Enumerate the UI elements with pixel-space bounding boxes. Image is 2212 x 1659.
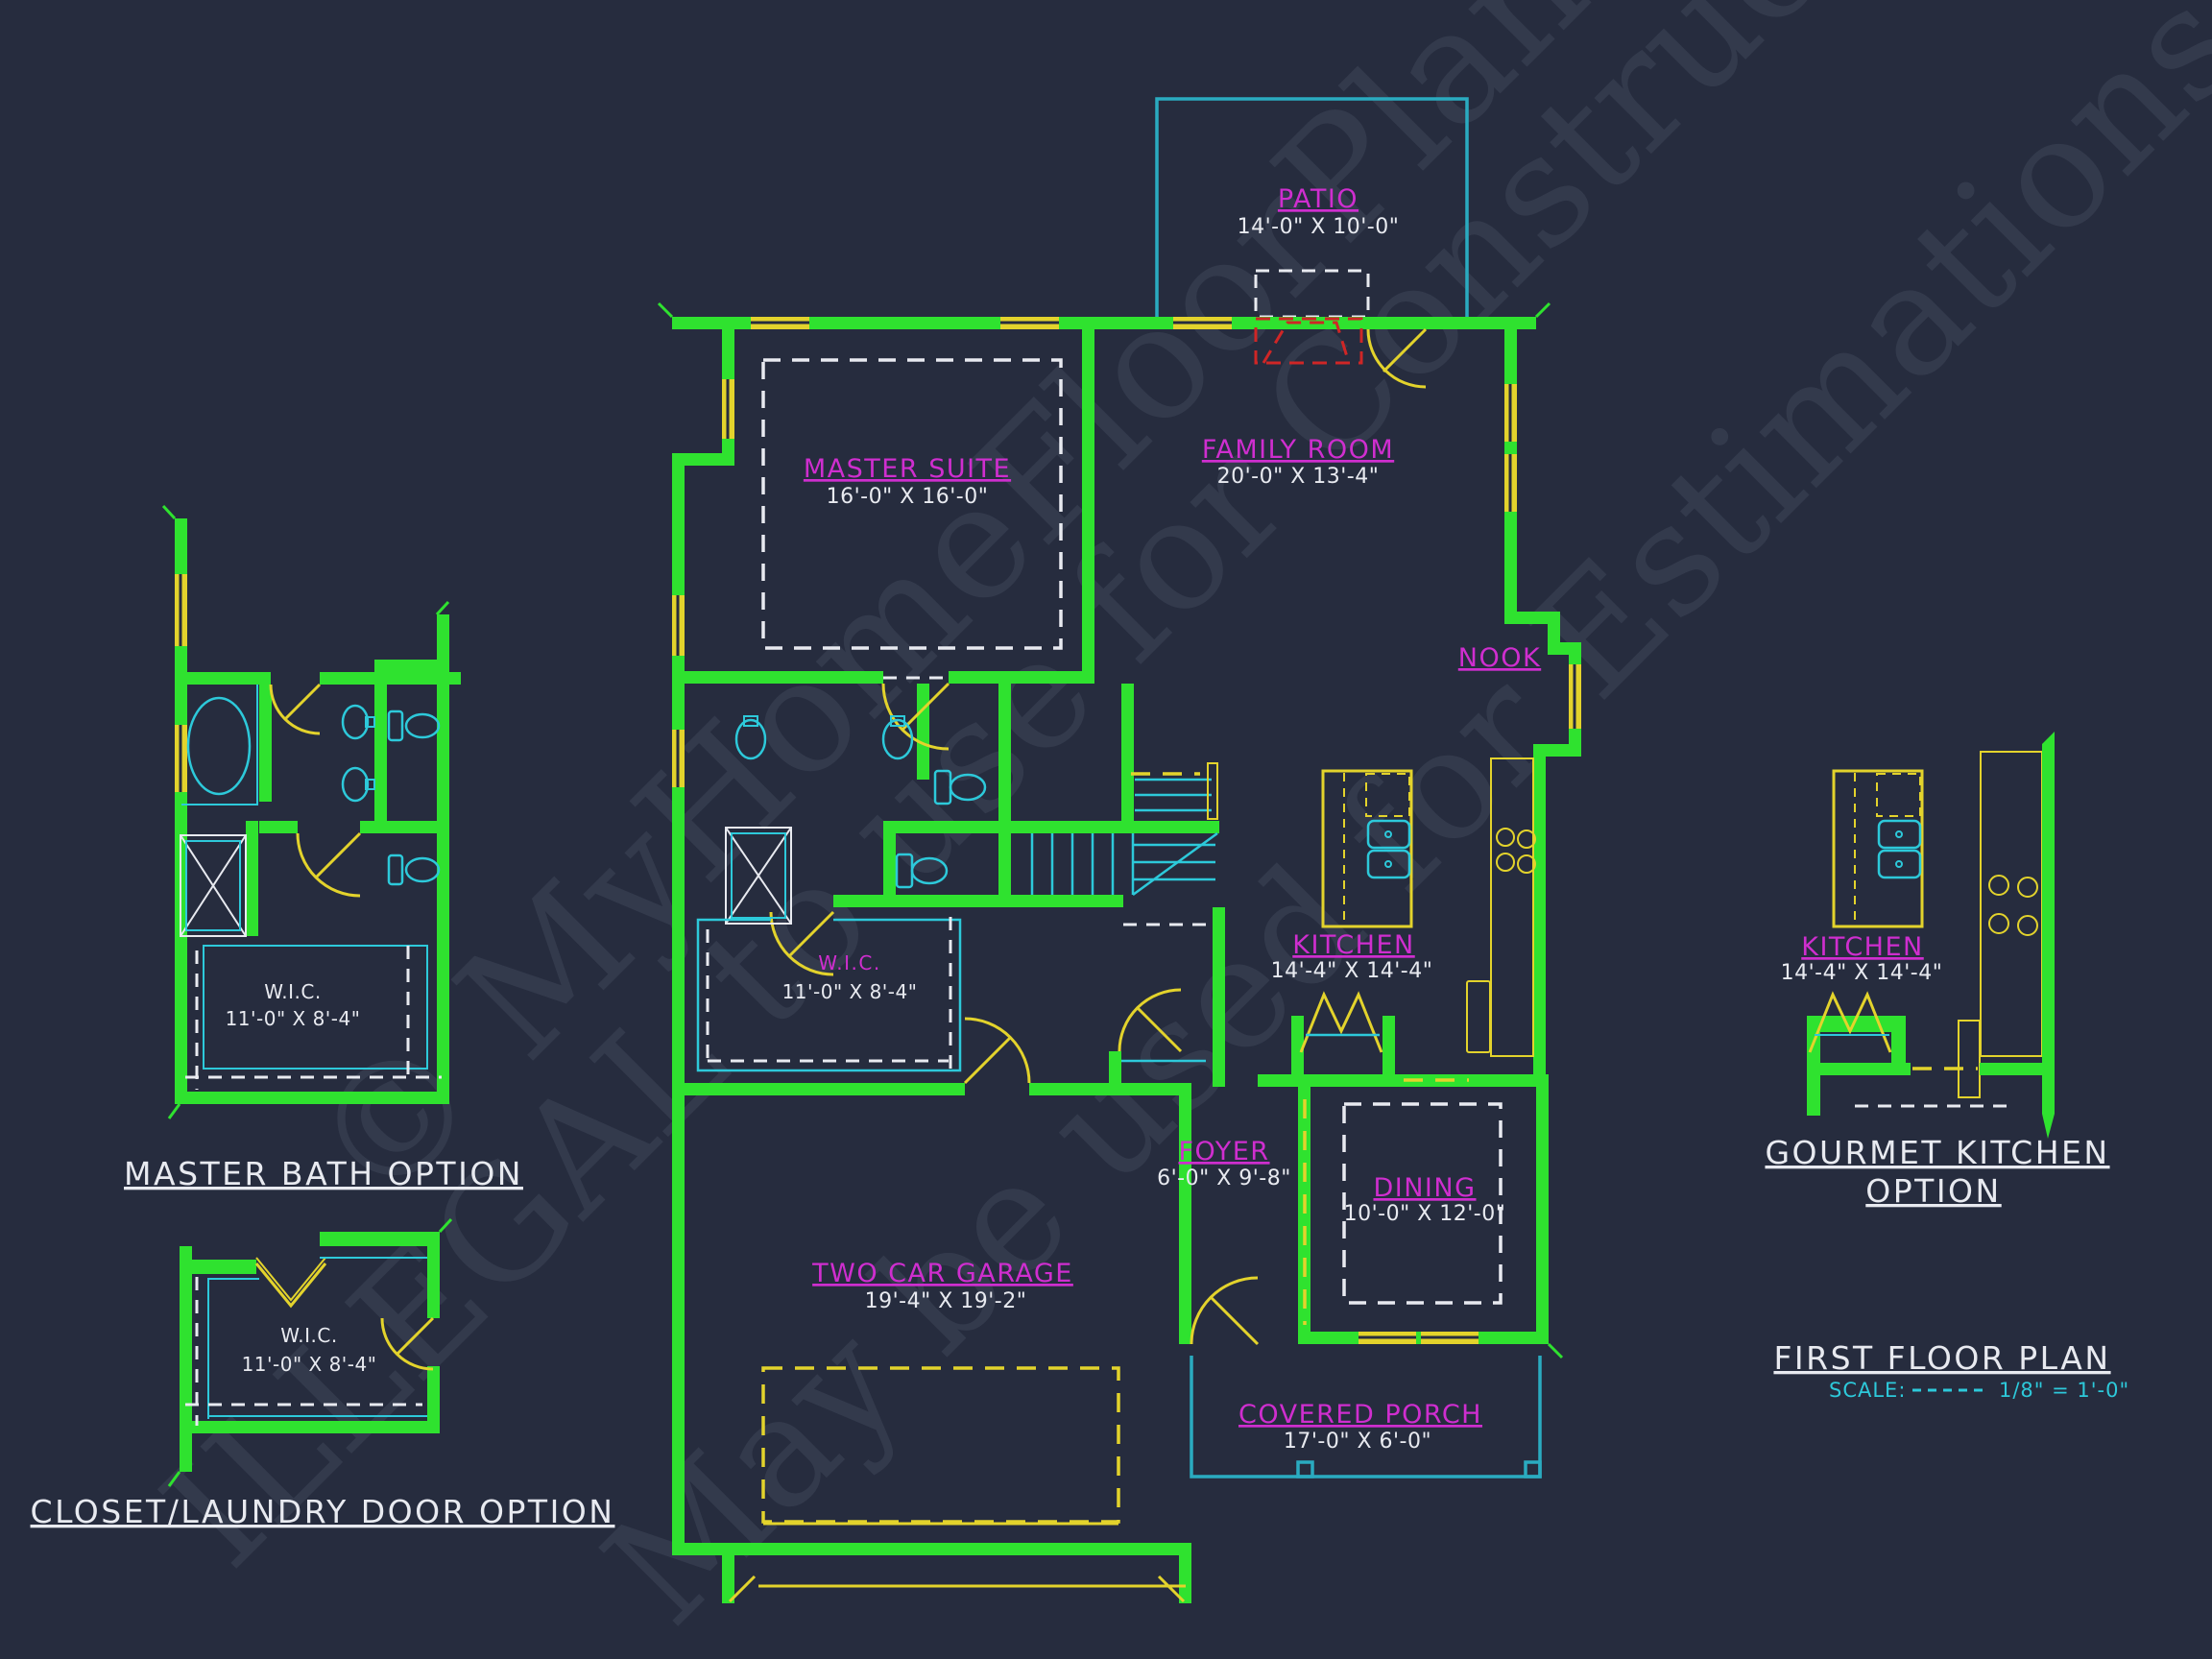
- room-label-garage: TWO CAR GARAGE: [811, 1259, 1073, 1288]
- room-dim-master-suite: 16'-0" X 16'-0": [827, 485, 989, 509]
- room-dim-family-room: 20'-0" X 13'-4": [1217, 465, 1380, 489]
- covered-porch: COVERED PORCH 17'-0" X 6'-0": [1191, 1356, 1540, 1477]
- plan-title: FIRST FLOOR PLAN: [1773, 1339, 2110, 1377]
- room-label-wic: W.I.C.: [818, 951, 880, 974]
- first-floor-plan-drawing: © MyHomeFloorPlans.com ILLEGAL to use fo…: [0, 0, 2212, 1659]
- room-dim-patio: 14'-0" X 10'-0": [1238, 215, 1400, 239]
- option-bath-wic-label: W.I.C.: [264, 980, 321, 1003]
- room-label-porch: COVERED PORCH: [1238, 1400, 1482, 1430]
- option-gourmet-title-1: GOURMET KITCHEN: [1765, 1134, 2109, 1171]
- option-bath-title: MASTER BATH OPTION: [124, 1155, 523, 1192]
- room-label-nook: NOOK: [1458, 643, 1541, 673]
- room-label-foyer: FOYER: [1178, 1137, 1269, 1166]
- sheet-title: FIRST FLOOR PLAN SCALE: 1/8" = 1'-0": [1773, 1339, 2129, 1402]
- option-gourmet-kitchen: KITCHEN 14'-4" X 14'-4" GOURMET KITCHEN …: [1765, 732, 2109, 1210]
- room-label-kitchen: KITCHEN: [1292, 930, 1415, 960]
- room-label-master-suite: MASTER SUITE: [804, 454, 1011, 484]
- room-label-family-room: FAMILY ROOM: [1202, 435, 1394, 465]
- room-dim-garage: 19'-4" X 19'-2": [865, 1289, 1027, 1313]
- room-label-patio: PATIO: [1278, 184, 1358, 214]
- room-dim-kitchen: 14'-4" X 14'-4": [1271, 959, 1433, 983]
- plan-scale-value: 1/8" = 1'-0": [1999, 1379, 2129, 1402]
- option-bath-wic-dim: 11'-0" X 8'-4": [226, 1007, 361, 1030]
- room-dim-dining: 10'-0" X 12'-0": [1344, 1202, 1506, 1226]
- plan-scale-label: SCALE:: [1829, 1379, 1906, 1402]
- option-gourmet-title-2: OPTION: [1865, 1172, 2001, 1210]
- room-label-dining: DINING: [1373, 1173, 1476, 1203]
- option-gourmet-kitchen-label: KITCHEN: [1801, 932, 1924, 962]
- option-closet-wic-dim: 11'-0" X 8'-4": [242, 1353, 377, 1376]
- room-dim-foyer: 6'-0" X 9'-8": [1157, 1166, 1291, 1190]
- option-gourmet-kitchen-dim: 14'-4" X 14'-4": [1781, 961, 1943, 985]
- room-dim-porch: 17'-0" X 6'-0": [1284, 1430, 1431, 1454]
- option-closet-wic-label: W.I.C.: [280, 1324, 337, 1347]
- room-dim-wic: 11'-0" X 8'-4": [782, 980, 918, 1003]
- option-closet-title: CLOSET/LAUNDRY DOOR OPTION: [31, 1493, 615, 1530]
